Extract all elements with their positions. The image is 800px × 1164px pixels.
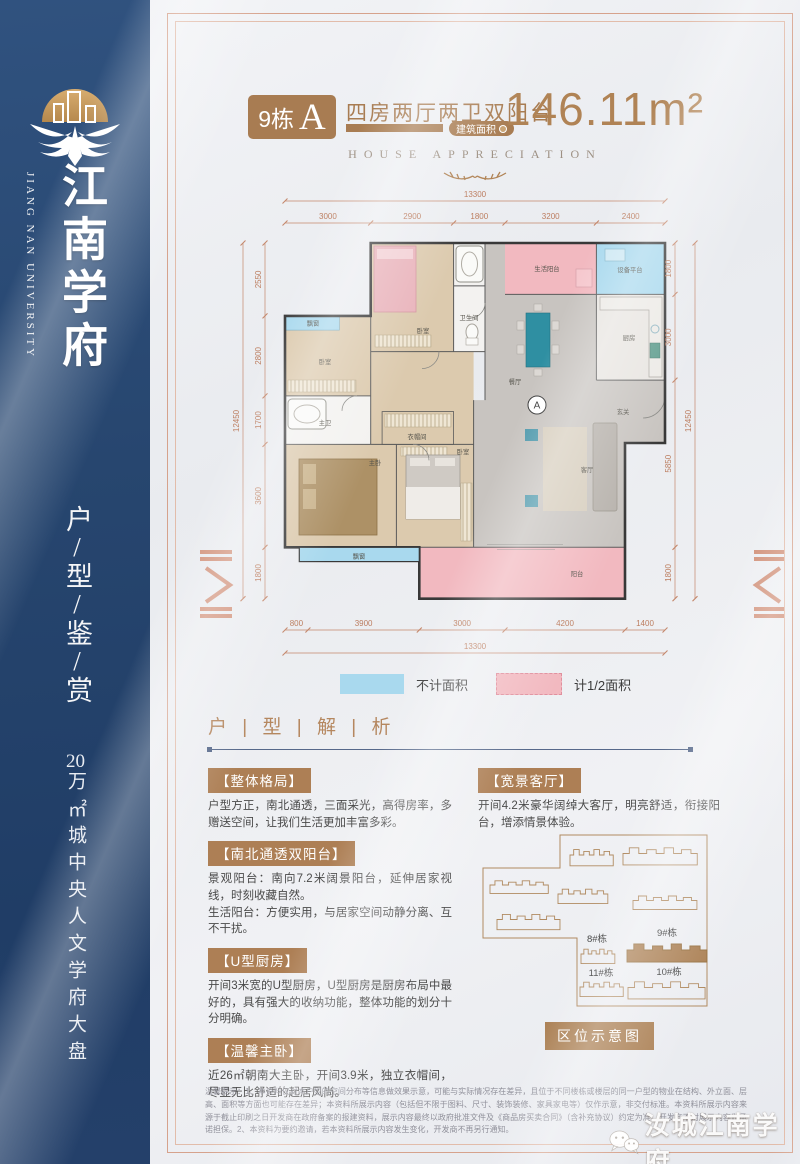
section-title-badge: 【温馨主卧】 [208, 1038, 311, 1063]
svg-text:1800: 1800 [664, 259, 673, 277]
svg-text:3200: 3200 [542, 212, 560, 221]
map-label-9: 9#栋 [657, 927, 678, 939]
brand-english: JIANG NAN UNIVERSITY [24, 172, 36, 402]
legend-swatch-pink [496, 673, 562, 695]
svg-text:主卧: 主卧 [369, 458, 382, 467]
svg-text:2800: 2800 [254, 346, 263, 364]
chevron-left-icon [748, 548, 788, 618]
unit-letter: A [299, 99, 326, 136]
section-title-badge: 【南北通透双阳台】 [208, 841, 355, 866]
analysis-left-column: 【整体格局】 户型方正，南北通透，三面采光，高得房率，多赠送空间，让我们生活更加… [208, 768, 452, 1111]
svg-text:5850: 5850 [664, 454, 673, 472]
wechat-icon [608, 1127, 641, 1157]
svg-text:1800: 1800 [254, 564, 263, 582]
analysis-section: 【南北通透双阳台】 景观阳台：南向7.2米阔景阳台，延伸居家视线，时刻收藏自然。… [208, 841, 452, 938]
english-caption: HOUSE APPRECIATION [290, 147, 660, 162]
svg-text:卫生间: 卫生间 [460, 313, 479, 322]
map-label-10: 10#栋 [656, 966, 682, 978]
svg-text:12450: 12450 [684, 409, 693, 432]
svg-text:飘窗: 飘窗 [307, 319, 320, 328]
plan-legend: 不计面积 计1/2面积 [340, 673, 631, 695]
analysis-title: 户 | 型 | 解 | 析 [208, 712, 395, 739]
svg-text:3600: 3600 [254, 486, 263, 504]
svg-text:生活阳台: 生活阳台 [534, 264, 559, 273]
tagline-text: 万㎡城中央人文学府大盘 [65, 771, 86, 1068]
svg-text:1800: 1800 [664, 564, 673, 582]
location-map: 8#栋 9#栋 11#栋 10#栋 [475, 830, 720, 1015]
brand-chinese: 江南学府 [48, 162, 114, 392]
svg-text:12450: 12450 [232, 409, 241, 432]
svg-text:3000: 3000 [319, 212, 337, 221]
tagline-number: 20 [65, 752, 86, 771]
map-building-8 [581, 949, 615, 963]
floor-plan: A 飘窗 卧室 卧室 卫生间 生活阳台 设备平台 餐厅 厨房 玄关 主卫 衣帽间… [225, 183, 705, 675]
map-building-11 [580, 982, 623, 996]
svg-text:3000: 3000 [453, 619, 471, 628]
sidebar-slogan: 户/型/鉴/赏 [58, 505, 97, 705]
sidebar-tagline: 20万㎡城中央人文学府大盘 [62, 752, 89, 1092]
svg-text:13300: 13300 [464, 190, 487, 199]
analysis-section: 【宽景客厅】 开间4.2米豪华阔绰大客厅，明亮舒适，衔接阳台，增添情景体验。 [478, 768, 720, 831]
section-title-badge: 【宽景客厅】 [478, 768, 581, 793]
svg-text:衣帽间: 衣帽间 [408, 432, 427, 441]
section-body: 景观阳台：南向7.2米阔景阳台，延伸居家视线，时刻收藏自然。 生活阳台：方便实用… [208, 871, 452, 938]
area-label: 建筑面积 [456, 121, 496, 136]
poster-page: JIANG NAN UNIVERSITY 江南学府 户/型/鉴/赏 20万㎡城中… [0, 0, 800, 1164]
area-value: 146.11m² [505, 82, 704, 136]
svg-text:厨房: 厨房 [623, 333, 636, 342]
sidebar: JIANG NAN UNIVERSITY 江南学府 户/型/鉴/赏 20万㎡城中… [0, 0, 150, 1164]
svg-text:卧室: 卧室 [319, 357, 332, 366]
legend-label: 不计面积 [416, 675, 468, 694]
section-body: 开间4.2米豪华阔绰大客厅，明亮舒适，衔接阳台，增添情景体验。 [478, 798, 720, 831]
svg-text:餐厅: 餐厅 [509, 377, 522, 386]
analysis-divider [208, 749, 692, 750]
section-body: 开间3米宽的U型厨房，U型厨房是厨房布局中最好的，具有强大的收纳功能，整体功能的… [208, 978, 452, 1028]
svg-text:2400: 2400 [622, 212, 640, 221]
svg-text:3900: 3900 [355, 619, 373, 628]
map-building-10 [628, 982, 705, 999]
section-body: 户型方正，南北通透，三面采光，高得房率，多赠送空间，让我们生活更加丰富多彩。 [208, 798, 452, 831]
svg-text:设备平台: 设备平台 [617, 265, 642, 274]
analysis-section: 【整体格局】 户型方正，南北通透，三面采光，高得房率，多赠送空间，让我们生活更加… [208, 768, 452, 831]
svg-text:主卫: 主卫 [319, 418, 332, 427]
subtitle-underline [346, 124, 443, 132]
svg-text:3000: 3000 [664, 328, 673, 346]
svg-text:4200: 4200 [556, 619, 574, 628]
brand-logo-icon [28, 78, 122, 170]
svg-text:800: 800 [290, 619, 304, 628]
analysis-section: 【U型厨房】 开间3米宽的U型厨房，U型厨房是厨房布局中最好的，具有强大的收纳功… [208, 948, 452, 1028]
svg-text:1800: 1800 [470, 212, 488, 221]
svg-text:2550: 2550 [254, 270, 263, 288]
svg-text:1400: 1400 [636, 619, 654, 628]
map-title-badge: 区位示意图 [545, 1022, 654, 1050]
legend-label: 计1/2面积 [574, 675, 631, 694]
svg-text:飘窗: 飘窗 [353, 552, 366, 561]
legend-swatch-blue [340, 674, 404, 694]
watermark: 汝城江南学府 [608, 1106, 800, 1164]
svg-text:13300: 13300 [464, 642, 487, 651]
svg-text:客厅: 客厅 [581, 465, 594, 474]
svg-text:1700: 1700 [254, 411, 263, 429]
section-title-badge: 【U型厨房】 [208, 948, 307, 973]
legend-item-blue: 不计面积 [340, 674, 468, 694]
svg-text:玄关: 玄关 [617, 407, 630, 416]
svg-text:阳台: 阳台 [571, 569, 584, 578]
svg-text:2900: 2900 [403, 212, 421, 221]
map-building-9-highlighted [627, 944, 707, 962]
svg-text:卧室: 卧室 [417, 326, 430, 335]
unit-badge: 9栋 A [248, 95, 336, 139]
svg-text:卧室: 卧室 [457, 447, 470, 456]
watermark-text: 汝城江南学府 [645, 1106, 800, 1164]
map-label-11: 11#栋 [589, 967, 614, 979]
unit-marker-label: A [534, 401, 541, 412]
section-title-badge: 【整体格局】 [208, 768, 311, 793]
legend-item-pink: 计1/2面积 [496, 673, 631, 695]
building-number: 9栋 [258, 100, 294, 134]
room-fills [285, 243, 665, 599]
map-label-8: 8#栋 [587, 933, 608, 945]
map-boundary [483, 835, 707, 1006]
